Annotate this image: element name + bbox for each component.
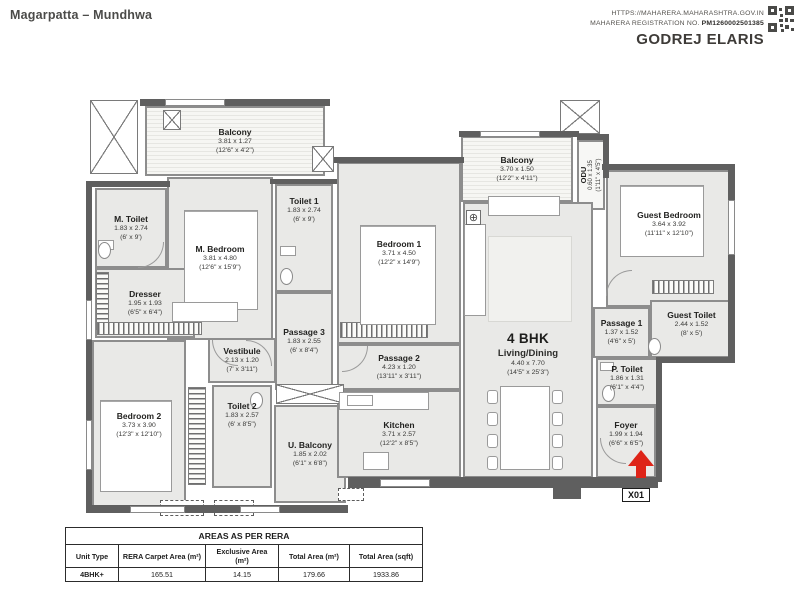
- shaft-icon: [163, 110, 181, 130]
- window: [380, 479, 430, 487]
- toilet-wc-icon: [98, 242, 111, 259]
- shaft-icon: [312, 146, 334, 172]
- room-name: ODU: [579, 167, 588, 184]
- washbasin-icon: [280, 246, 296, 256]
- room-passage-3: [275, 292, 333, 390]
- chair-icon: [552, 434, 563, 448]
- room-passage-1: [593, 307, 650, 358]
- toilet-wc-icon: [250, 392, 263, 409]
- wall: [86, 181, 170, 187]
- chair-icon: [552, 412, 563, 426]
- chair-icon: [487, 412, 498, 426]
- window: [240, 506, 280, 513]
- toilet-wc-icon: [648, 338, 661, 355]
- floor-plan: Balcony3.81 x 1.27(12'6" x 4'2")M. Toile…: [0, 0, 800, 600]
- col-rera-carpet-area: RERA Carpet Area (m²): [119, 545, 206, 568]
- wall: [728, 164, 735, 362]
- room-toilet-2: [212, 385, 272, 488]
- rug-icon: [488, 236, 572, 322]
- wall: [656, 357, 662, 482]
- shaft-icon: [276, 384, 344, 404]
- col-exclusive-area: Exclusive Area (m²): [206, 545, 279, 568]
- window: [728, 200, 735, 255]
- col-total-area-m2: Total Area (m²): [279, 545, 350, 568]
- window: [86, 300, 92, 340]
- window: [130, 506, 185, 513]
- areas-table: AREAS AS PER RERA Unit Type RERA Carpet …: [65, 527, 423, 582]
- chair-icon: [487, 434, 498, 448]
- sofa-icon: [488, 196, 560, 216]
- toilet-wc-icon: [602, 385, 615, 402]
- chair-icon: [552, 390, 563, 404]
- wall: [86, 505, 348, 513]
- toilet-wc-icon: [280, 268, 293, 285]
- entrance-door-label: X01: [622, 488, 650, 502]
- room-dim-m: 0.60 x 1.35: [588, 160, 595, 190]
- col-unit-type: Unit Type: [66, 545, 119, 568]
- wardrobe-icon: [652, 280, 714, 294]
- shaft-icon: [560, 100, 600, 134]
- hob-icon: [363, 452, 389, 470]
- bed-icon: [620, 185, 704, 257]
- col-total-area-sqft: Total Area (sqft): [350, 545, 423, 568]
- chair-icon: [487, 456, 498, 470]
- cell-total-area-sqft: 1933.86: [350, 568, 423, 582]
- cell-exclusive-area: 14.15: [206, 568, 279, 582]
- chair-icon: [552, 456, 563, 470]
- window: [480, 131, 540, 137]
- chair-icon: [487, 390, 498, 404]
- room-u-balcony: [274, 405, 346, 503]
- wall: [602, 164, 735, 170]
- wall: [603, 138, 609, 178]
- wall: [270, 179, 337, 184]
- bed-icon: [360, 225, 436, 325]
- wardrobe-icon: [97, 322, 202, 335]
- ac-ledge: [338, 488, 364, 501]
- table-row: 4BHK+ 165.51 14.15 179.66 1933.86: [66, 568, 423, 582]
- wall: [334, 157, 464, 163]
- bed-icon: [184, 210, 258, 310]
- wardrobe-icon: [188, 387, 206, 485]
- room-balcony-living: [461, 136, 573, 202]
- cell-rera-carpet-area: 165.51: [119, 568, 206, 582]
- sofa-icon: [464, 224, 486, 316]
- bed-icon: [100, 400, 172, 492]
- sink-icon: [347, 395, 373, 406]
- qr-code-icon: [768, 6, 794, 32]
- room-guest-toilet: [650, 300, 733, 358]
- entrance-arrow-icon: [628, 450, 654, 480]
- window: [86, 420, 92, 470]
- cell-unit-type: 4BHK+: [66, 568, 119, 582]
- sofa-icon: [172, 302, 238, 322]
- washbasin-icon: [600, 362, 614, 371]
- column-marker-icon: ⊕: [466, 210, 481, 225]
- cell-total-area-m2: 179.66: [279, 568, 350, 582]
- wall: [553, 477, 581, 499]
- window: [165, 99, 225, 106]
- areas-table-title: AREAS AS PER RERA: [66, 528, 423, 545]
- dining-table-icon: [500, 386, 550, 470]
- wall: [658, 357, 735, 363]
- room-label-odu: ODU0.60 x 1.35(1'11" x 4'5"): [577, 140, 605, 210]
- shaft-icon: [90, 100, 138, 174]
